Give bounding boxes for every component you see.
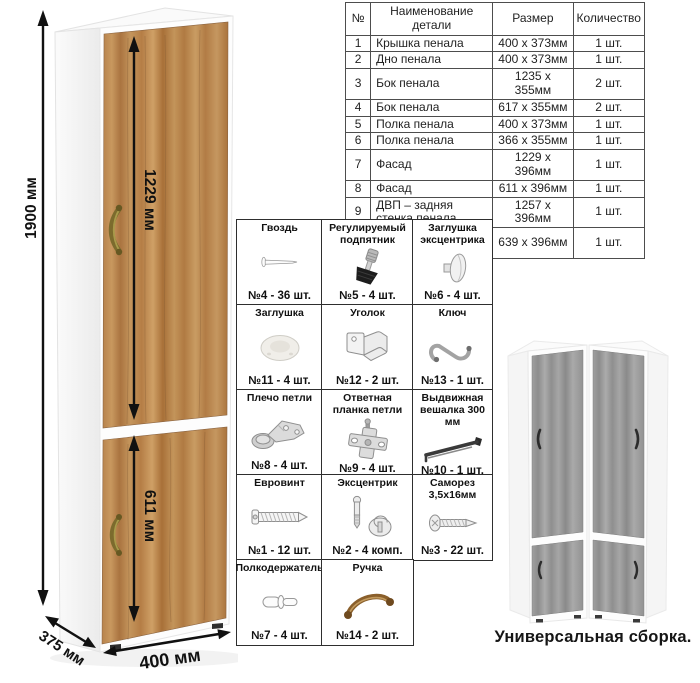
hardware-item-adjustable-foot: Регулируемый подпятник №5 - 4 шт. (321, 219, 414, 306)
gray-cabinet-left (508, 341, 587, 623)
part-qty: 1 шт. (573, 133, 644, 150)
hardware-name: Саморез 3,5х16мм (415, 478, 490, 502)
part-name: Полка пенала (371, 116, 493, 133)
hardware-item-hex-key: Ключ №13 - 1 шт. (412, 304, 493, 391)
hardware-name: Евровинт (254, 478, 305, 490)
cabinet-side-panel (55, 28, 100, 652)
part-name: Дно пенала (371, 52, 493, 69)
cam-lock-icon (337, 490, 399, 545)
part-size: 639 х 396мм (493, 228, 573, 259)
cabinet-bottom-door (102, 427, 227, 644)
part-num: 8 (346, 180, 371, 197)
universal-assembly-preview (498, 326, 678, 626)
hardware-name: Ответная планка петли (324, 393, 411, 417)
hardware-count: №14 - 2 шт. (336, 630, 399, 642)
part-num: 4 (346, 99, 371, 116)
top-door-label: 1229 мм (141, 169, 158, 231)
part-num: 3 (346, 69, 371, 100)
part-qty: 1 шт. (573, 35, 644, 52)
part-size: 400 х 373мм (493, 35, 573, 52)
table-row: 4 Бок пенала 617 х 355мм 2 шт. (346, 99, 645, 116)
part-num: 6 (346, 133, 371, 150)
dimension-height: 1900 мм (23, 10, 49, 606)
hardware-count: №11 - 4 шт. (248, 375, 310, 387)
table-row: 1 Крышка пенала 400 х 373мм 1 шт. (346, 35, 645, 52)
hardware-name: Ключ (439, 308, 467, 320)
col-header-size: Размер (493, 3, 573, 36)
part-qty: 1 шт. (573, 52, 644, 69)
table-row: 5 Полка пенала 400 х 373мм 1 шт. (346, 116, 645, 133)
euro-screw-icon (247, 490, 313, 545)
hardware-count: №7 - 4 шт. (251, 630, 307, 642)
plug-cap-icon (249, 320, 311, 375)
hardware-count: №9 - 4 шт. (339, 463, 395, 475)
part-name: Бок пенала (371, 69, 493, 100)
hardware-count: №6 - 4 шт. (424, 290, 480, 302)
hardware-count: №2 - 4 комп. (332, 545, 402, 557)
hardware-count: №5 - 4 шт. (339, 290, 395, 302)
parts-table-header-row: № Наименование детали Размер Количество (346, 3, 645, 36)
part-qty: 1 шт. (573, 150, 644, 181)
assembly-instruction-sheet: 1900 мм 1229 мм 611 мм 375 мм (0, 0, 700, 683)
table-row: 3 Бок пенала 1235 х 355мм 2 шт. (346, 69, 645, 100)
hardware-count: №3 - 22 шт. (421, 545, 484, 557)
cabinet-foot (212, 623, 223, 629)
hardware-name: Полкодержатель (235, 563, 323, 575)
adjustable-foot-icon (338, 247, 398, 290)
hardware-item-cam-cover: Заглушка эксцентрика №6 - 4 шт. (412, 219, 493, 306)
hardware-grid: Гвоздь №4 - 36 шт. Регулируемый подпятни… (237, 220, 492, 645)
cabinet-dimension-drawing: 1900 мм 1229 мм 611 мм 375 мм (0, 0, 238, 683)
part-name: Бок пенала (371, 99, 493, 116)
part-name: Фасад (371, 180, 493, 197)
cam-cover-icon (428, 247, 478, 290)
hardware-count: №8 - 4 шт. (251, 460, 307, 472)
part-name: Крышка пенала (371, 35, 493, 52)
hardware-item-plug-cap: Заглушка №11 - 4 шт. (236, 304, 323, 391)
hardware-item-shelf-pin: Полкодержатель №7 - 4 шт. (236, 559, 323, 646)
part-name: Фасад (371, 150, 493, 181)
shelf-pin-icon (251, 575, 309, 630)
part-size: 400 х 373мм (493, 52, 573, 69)
hardware-count: №13 - 1 шт. (421, 375, 484, 387)
part-size: 1229 х 396мм (493, 150, 573, 181)
hardware-name: Выдвижная вешалка 300 мм (415, 393, 490, 428)
hardware-name: Гвоздь (261, 223, 298, 235)
table-row: 7 Фасад 1229 х 396мм 1 шт. (346, 150, 645, 181)
hinge-arm-icon (248, 405, 312, 460)
col-header-name: Наименование детали (371, 3, 493, 36)
part-num: 1 (346, 35, 371, 52)
part-num: 7 (346, 150, 371, 181)
hinge-plate-icon (339, 417, 397, 463)
part-size: 617 х 355мм (493, 99, 573, 116)
part-qty: 2 шт. (573, 99, 644, 116)
hardware-item-hinge-arm: Плечо петли №8 - 4 шт. (236, 389, 323, 476)
height-label: 1900 мм (23, 177, 40, 239)
nail-icon (249, 235, 311, 290)
part-size: 400 х 373мм (493, 116, 573, 133)
hardware-name: Заглушка (255, 308, 304, 320)
hardware-name: Регулируемый подпятник (324, 223, 411, 247)
col-header-num: № (346, 3, 371, 36)
part-qty: 1 шт. (573, 197, 644, 228)
hardware-item-corner-bracket: Уголок №12 - 2 шт. (321, 304, 414, 391)
table-row: 6 Полка пенала 366 х 355мм 1 шт. (346, 133, 645, 150)
corner-bracket-icon (337, 320, 399, 375)
part-size: 1257 х 396мм (493, 197, 573, 228)
hardware-item-cam-lock: Эксцентрик №2 - 4 комп. (321, 474, 414, 561)
hardware-count: №12 - 2 шт. (336, 375, 399, 387)
part-qty: 1 шт. (573, 228, 644, 259)
handle-icon (336, 575, 400, 630)
part-qty: 1 шт. (573, 180, 644, 197)
hardware-count: №1 - 12 шт. (248, 545, 311, 557)
self-tapping-screw-icon (424, 502, 482, 545)
table-row: 2 Дно пенала 400 х 373мм 1 шт. (346, 52, 645, 69)
hardware-item-self-tapping-screw: Саморез 3,5х16мм №3 - 22 шт. (412, 474, 493, 561)
universal-assembly-caption: Универсальная сборка. (486, 628, 700, 647)
hardware-item-nail: Гвоздь №4 - 36 шт. (236, 219, 323, 306)
part-size: 611 х 396мм (493, 180, 573, 197)
pullout-hanger-icon (420, 429, 486, 465)
part-size: 1235 х 355мм (493, 69, 573, 100)
hardware-item-handle: Ручка №14 - 2 шт. (321, 559, 414, 646)
part-qty: 1 шт. (573, 116, 644, 133)
hardware-name: Заглушка эксцентрика (415, 223, 490, 247)
bottom-door-label: 611 мм (141, 490, 158, 542)
part-name: Полка пенала (371, 133, 493, 150)
hardware-name: Ручка (352, 563, 382, 575)
gray-cabinet-right (589, 341, 668, 623)
table-row: 8 Фасад 611 х 396мм 1 шт. (346, 180, 645, 197)
part-qty: 2 шт. (573, 69, 644, 100)
hardware-name: Уголок (350, 308, 385, 320)
hardware-name: Плечо петли (247, 393, 312, 405)
part-size: 366 х 355мм (493, 133, 573, 150)
col-header-qty: Количество (573, 3, 644, 36)
hardware-item-pullout-hanger: Выдвижная вешалка 300 мм №10 - 1 шт. (412, 389, 493, 476)
part-num: 2 (346, 52, 371, 69)
hardware-count: №4 - 36 шт. (248, 290, 311, 302)
hardware-item-euro-screw: Евровинт №1 - 12 шт. (236, 474, 323, 561)
hardware-name: Эксцентрик (337, 478, 397, 490)
hardware-item-hinge-plate: Ответная планка петли №9 - 4 шт. (321, 389, 414, 476)
part-num: 5 (346, 116, 371, 133)
hex-key-icon (424, 320, 482, 375)
